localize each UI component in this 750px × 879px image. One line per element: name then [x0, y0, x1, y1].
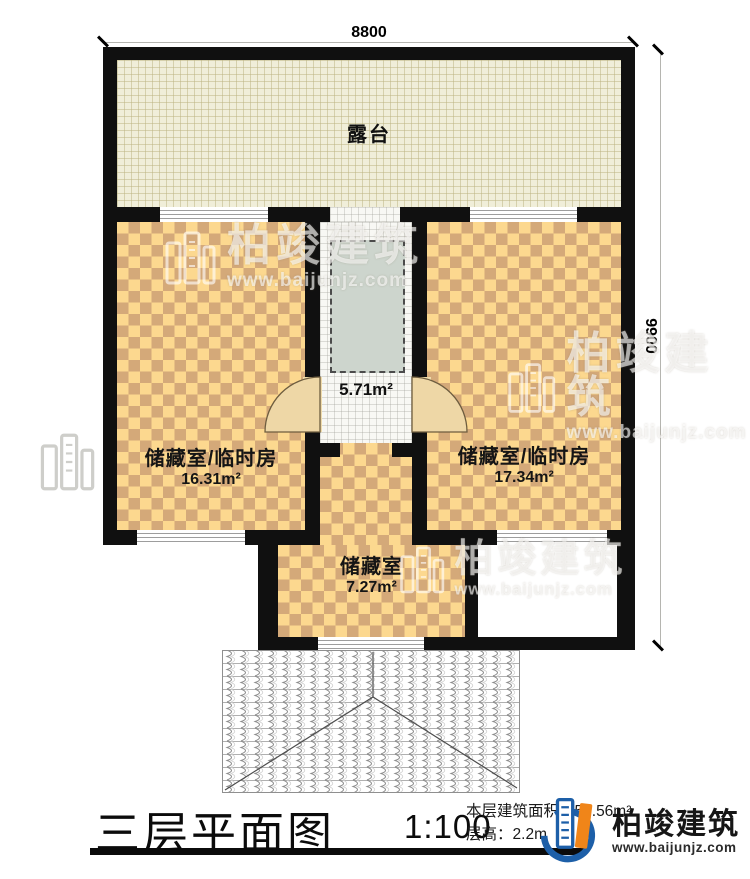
corridor-floor	[320, 443, 412, 545]
floor-height-prefix: 层高：	[466, 826, 513, 843]
storage-room-area: 7.27m²	[278, 579, 465, 597]
door-arc-right	[412, 377, 467, 432]
wall-stub	[392, 443, 412, 457]
window-right-room	[497, 530, 607, 545]
hall-area-label: 5.71m²	[320, 380, 412, 400]
storage-room-name: 储藏室	[278, 556, 465, 579]
company-logo: 柏竣建筑 www.baijunjz.com	[528, 792, 740, 872]
watermark-building-icon	[38, 431, 96, 493]
door-arc-left	[265, 377, 320, 432]
logo-url: www.baijunjz.com	[612, 840, 737, 855]
right-room-area: 17.34m²	[427, 469, 621, 487]
dimension-tick	[652, 43, 664, 55]
storage-room-label: 储藏室 7.27m²	[278, 556, 465, 597]
window-left-room	[137, 530, 245, 545]
room-bottom-right-empty	[478, 545, 617, 637]
left-room-name: 储藏室/临时房	[112, 448, 310, 471]
dimension-right-label: 9900	[641, 306, 659, 366]
wall-stub	[320, 443, 340, 457]
terrace-door-opening	[330, 207, 400, 222]
window-terrace-left	[160, 207, 268, 222]
right-room-label: 储藏室/临时房 17.34m²	[427, 446, 621, 487]
right-room-name: 储藏室/临时房	[427, 446, 621, 469]
dimension-line-right	[660, 52, 661, 650]
left-room-area: 16.31m²	[112, 471, 310, 489]
dimension-tick	[652, 639, 664, 651]
dimension-line-top	[103, 42, 635, 43]
terrace-label: 露台	[117, 118, 621, 147]
floor-plan-page: 柏竣建筑 www.baijunjz.com 8800 9900 露台 5.71m…	[0, 0, 750, 879]
dimension-top-label: 8800	[339, 24, 399, 42]
title-underline	[90, 848, 586, 855]
window-bottom-storage	[318, 637, 424, 650]
left-room-label: 储藏室/临时房 16.31m²	[112, 448, 310, 489]
stair-opening	[330, 240, 405, 373]
roof	[222, 650, 520, 793]
window-terrace-right	[470, 207, 577, 222]
logo-building-icon	[528, 792, 606, 872]
logo-name: 柏竣建筑	[612, 809, 740, 841]
